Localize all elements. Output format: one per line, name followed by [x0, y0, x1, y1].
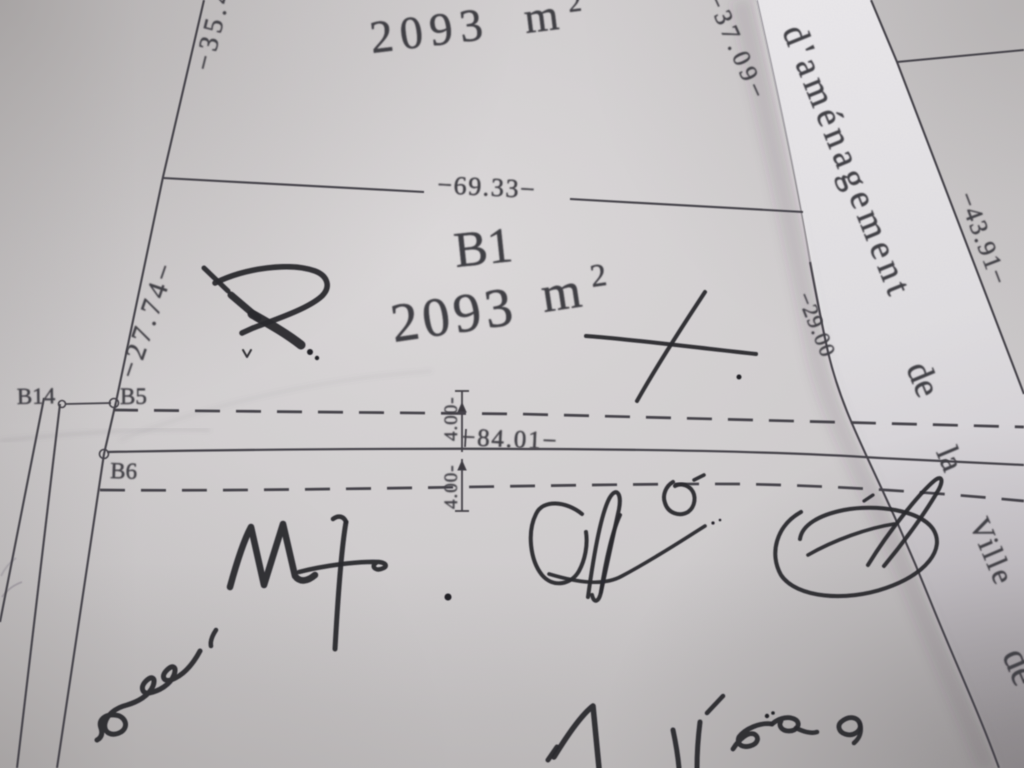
svg-text:−84.01−: −84.01− [461, 424, 559, 455]
svg-text:B6: B6 [110, 458, 138, 484]
svg-text:4.00-: 4.00- [441, 396, 462, 441]
svg-text:−69.33−: −69.33− [437, 170, 537, 204]
svg-text:B5: B5 [120, 384, 147, 409]
svg-text:2: 2 [566, 0, 583, 18]
svg-text:m: m [521, 0, 561, 43]
svg-text:m: m [537, 263, 585, 324]
svg-text:B14: B14 [17, 383, 56, 409]
svg-text:4.00-: 4.00- [441, 464, 462, 509]
svg-text:B1: B1 [451, 216, 515, 278]
